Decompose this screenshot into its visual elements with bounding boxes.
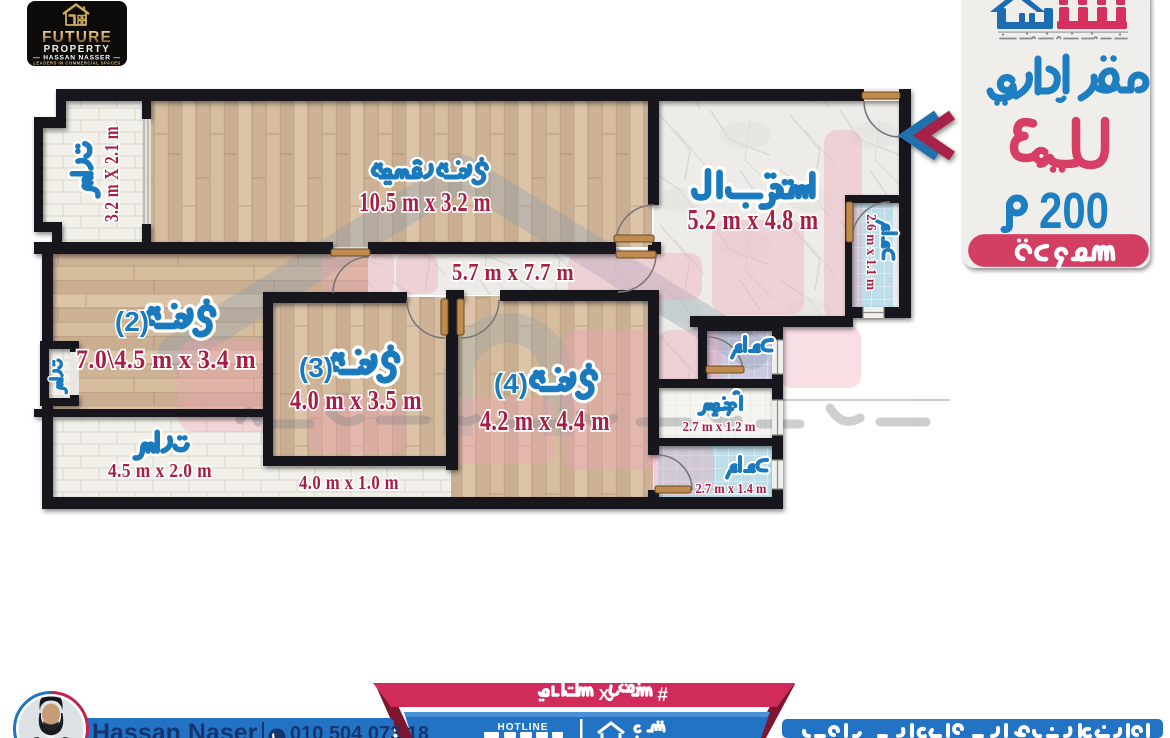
- svg-text:10.5 m x 3.2 m: 10.5 m x 3.2 m: [359, 187, 491, 217]
- svg-text:X: X: [599, 687, 610, 704]
- svg-text:(3): (3): [299, 352, 333, 383]
- svg-text:200: 200: [1039, 182, 1109, 239]
- svg-text:(2): (2): [115, 306, 149, 337]
- svg-text:7.0\4.5 m x 3.4 m: 7.0\4.5 m x 3.4 m: [76, 345, 256, 374]
- svg-text:2.6 m x 1.1 m: 2.6 m x 1.1 m: [864, 214, 879, 291]
- svg-text:5.2 m x 4.8 m: 5.2 m x 4.8 m: [688, 205, 819, 236]
- svg-text:2.7 m x 1.2 m: 2.7 m x 1.2 m: [683, 419, 757, 434]
- svg-text:Hassan Naser: Hassan Naser: [92, 719, 258, 738]
- svg-text:#: #: [657, 685, 668, 706]
- svg-text:LEADERS IN COMMERCIAL SPACES: LEADERS IN COMMERCIAL SPACES: [33, 61, 120, 66]
- svg-text:3.2 m X 2.1 m: 3.2 m X 2.1 m: [101, 126, 123, 222]
- svg-text:010 504 073 18: 010 504 073 18: [290, 723, 429, 738]
- svg-text:(4): (4): [494, 368, 528, 399]
- svg-text:PROPERTY: PROPERTY: [44, 44, 111, 55]
- svg-text:2.7 m x 1.4 m: 2.7 m x 1.4 m: [696, 481, 768, 496]
- svg-text:HOTLINE: HOTLINE: [498, 722, 549, 733]
- svg-text:5.7 m x 7.7 m: 5.7 m x 7.7 m: [452, 260, 574, 286]
- svg-text:4.0 m x 1.0 m: 4.0 m x 1.0 m: [299, 472, 399, 494]
- svg-text:4.2 m x 4.4 m: 4.2 m x 4.4 m: [480, 406, 610, 437]
- svg-text:4.0 m x 3.5 m: 4.0 m x 3.5 m: [290, 385, 422, 415]
- svg-text:4.5 m x 2.0 m: 4.5 m x 2.0 m: [108, 460, 212, 482]
